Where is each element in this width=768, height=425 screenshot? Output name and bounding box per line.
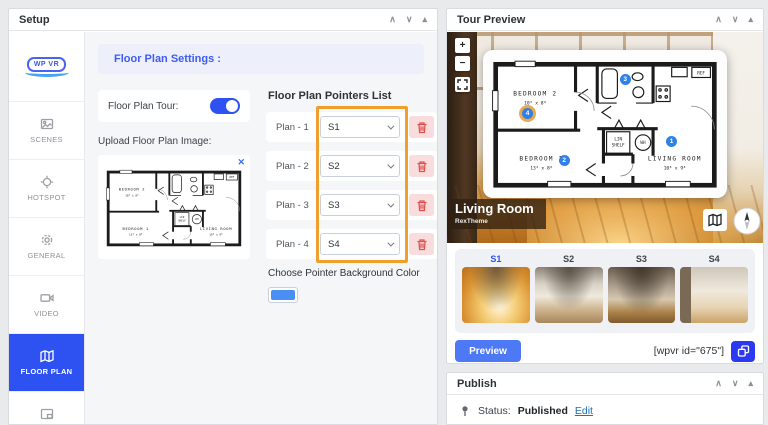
move-down-icon[interactable]: ∨ — [406, 15, 413, 24]
tour-preview-header: Tour Preview ∧ ∨ ▴ — [447, 9, 763, 31]
fullscreen-button[interactable] — [455, 77, 470, 92]
room-dims-bedroom1: 13⁴ x 8⁸ — [530, 166, 553, 172]
trash-icon — [416, 238, 428, 251]
chevron-down-icon — [387, 122, 394, 129]
pointer-row-label: Plan - 2 — [272, 161, 320, 172]
copy-shortcode-button[interactable] — [731, 341, 755, 362]
room-label-bedroom1: BEDROOM 1 — [123, 227, 149, 231]
sidebar-item-general[interactable]: GENERAL — [9, 218, 84, 276]
room-dims-bedroom2: 10³ x 8⁸ — [524, 101, 547, 107]
brand-watermark: RexTheme — [455, 218, 534, 225]
scene-pointer-3[interactable]: 3 — [620, 74, 631, 85]
pointer-color-label: Choose Pointer Background Color — [268, 268, 437, 279]
trash-icon — [416, 160, 428, 173]
pointer-color-value — [271, 290, 295, 300]
pointer-row-label: Plan - 3 — [272, 200, 320, 211]
zoom-in-button[interactable]: + — [455, 38, 470, 53]
floor-plan-image: BEDROOM 2 10³ x 8⁸ BEDROOM 1 13⁴ x 8⁸ LI… — [104, 163, 244, 253]
tour-preview-panel: Tour Preview ∧ ∨ ▴ + − — [446, 8, 764, 364]
pointer-color-swatch[interactable] — [268, 287, 298, 303]
pointer-row-2: Plan - 2 S2 — [266, 151, 437, 181]
room-dims-livingroom: 10⁸ x 9⁸ — [209, 233, 223, 237]
thumbnail-s2[interactable]: S2 — [535, 254, 603, 328]
wpvr-logo-text: WP VR — [27, 57, 66, 72]
sidebar-item-video[interactable]: VIDEO — [9, 276, 84, 334]
remove-image-icon[interactable]: ✕ — [237, 157, 245, 168]
setup-main-area: Floor Plan Settings : Floor Plan Tour: U… — [85, 32, 437, 424]
scene-pointer-1[interactable]: 1 — [666, 136, 677, 147]
refrigerator-label: REF — [697, 70, 705, 76]
floor-plan-image-card[interactable]: ✕ — [98, 155, 250, 259]
floor-plan-map-icon — [40, 349, 54, 363]
gear-icon — [40, 233, 54, 247]
status-label: Status: — [478, 405, 511, 417]
pointer-row-3: Plan - 3 S3 — [266, 190, 437, 220]
water-heater-label: WH — [640, 140, 646, 146]
preview-button[interactable]: Preview — [455, 340, 521, 362]
refrigerator-label: REF — [230, 175, 235, 179]
background-icon — [40, 407, 54, 421]
toggle-knob — [226, 100, 238, 112]
scene-select-value: S2 — [328, 161, 340, 172]
compass-control[interactable] — [733, 207, 761, 235]
collapse-panel-icon[interactable]: ▴ — [422, 15, 427, 24]
trash-icon — [416, 199, 428, 212]
scene-title-overlay: Living Room RexTheme — [447, 199, 546, 229]
thumbnail-s4[interactable]: S4 — [680, 254, 748, 328]
thumbnail-label: S2 — [563, 254, 574, 264]
scene-select-value: S1 — [328, 122, 340, 133]
setup-sidebar: WP VR SCENES HOTSPOT GENERAL VIDEO F — [9, 32, 85, 424]
scene-select-value: S3 — [328, 200, 340, 211]
pointer-row-label: Plan - 4 — [272, 239, 320, 250]
sidebar-item-label: GENERAL — [28, 251, 66, 260]
publish-panel-title: Publish — [457, 378, 497, 390]
room-label-bedroom1: BEDROOM 1 — [519, 155, 563, 162]
sidebar-item-floor-plan[interactable]: FLOOR PLAN — [9, 334, 84, 392]
move-up-icon[interactable]: ∧ — [715, 15, 722, 24]
pointer-row-label: Plan - 1 — [272, 122, 320, 133]
thumbnail-label: S3 — [636, 254, 647, 264]
pointer-row-4: Plan - 4 S4 — [266, 229, 437, 259]
lin-shelf-label: SHELF — [178, 219, 186, 223]
status-value: Published — [518, 405, 568, 417]
floor-plan-drawing: BEDROOM 2 10³ x 8⁸ BEDROOM 1 13⁴ x 8⁸ LI… — [488, 55, 722, 193]
setup-panel-header: Setup ∧ ∨ ▴ — [9, 9, 437, 31]
sidebar-item-label: HOTSPOT — [27, 193, 65, 202]
room-dims-bedroom2: 10³ x 8⁸ — [125, 193, 139, 197]
pointer-row-1: Plan - 1 S1 — [266, 112, 437, 142]
water-heater-label: WH — [195, 217, 199, 221]
floor-plan-settings-heading: Floor Plan Settings : — [98, 44, 424, 74]
scene-select-4[interactable]: S4 — [320, 233, 400, 255]
chevron-down-icon — [387, 200, 394, 207]
room-label-livingroom: LIVING ROOM — [200, 227, 232, 231]
thumbnail-image[interactable] — [462, 267, 530, 323]
scene-select-3[interactable]: S3 — [320, 194, 400, 216]
scene-select-1[interactable]: S1 — [320, 116, 400, 138]
move-up-icon[interactable]: ∧ — [715, 379, 722, 388]
room-label-bedroom2: BEDROOM 2 — [513, 90, 557, 97]
delete-pointer-4-button[interactable] — [409, 233, 434, 255]
toggle-floor-plan-button[interactable] — [703, 209, 727, 231]
scene-pointer-4-active[interactable]: 4 — [522, 108, 533, 119]
edit-status-link[interactable]: Edit — [575, 405, 593, 417]
scene-thumbnails-bar: S1 S2 S3 S4 — [455, 249, 755, 333]
thumbnail-label: S4 — [709, 254, 720, 264]
publish-panel-header: Publish ∧ ∨ ▴ — [447, 373, 763, 395]
thumbnail-s1[interactable]: S1 — [462, 254, 530, 328]
sidebar-item-hotspot[interactable]: HOTSPOT — [9, 160, 84, 218]
lin-shelf-label: SHELF — [612, 142, 625, 148]
room-label-livingroom: LIVING ROOM — [648, 155, 702, 162]
setup-panel: Setup ∧ ∨ ▴ WP VR SCENES HOTSPOT GENERAL — [8, 8, 438, 425]
move-down-icon[interactable]: ∨ — [732, 379, 739, 388]
sidebar-item-label: VIDEO — [34, 309, 59, 318]
thumbnail-label: S1 — [490, 254, 501, 264]
move-up-icon[interactable]: ∧ — [389, 15, 396, 24]
delete-pointer-2-button[interactable] — [409, 155, 434, 177]
chevron-down-icon — [387, 161, 394, 168]
scene-select-2[interactable]: S2 — [320, 155, 400, 177]
pointers-list-heading: Floor Plan Pointers List — [268, 90, 437, 102]
room-dims-livingroom: 10⁸ x 9⁸ — [664, 166, 687, 172]
sidebar-item-label: FLOOR PLAN — [21, 367, 73, 376]
delete-pointer-3-button[interactable] — [409, 194, 434, 216]
status-row: Status: Published Edit — [459, 405, 751, 417]
publish-panel: Publish ∧ ∨ ▴ Status: Published Edit Vis… — [446, 372, 764, 425]
setup-panel-title: Setup — [19, 14, 50, 26]
sidebar-item-label: SCENES — [30, 135, 63, 144]
lin-shelf-label: LIN — [180, 215, 185, 219]
copy-icon — [736, 343, 751, 359]
shortcode-text: [wpvr id="675"] — [654, 345, 724, 357]
room-label-bedroom2: BEDROOM 2 — [119, 188, 145, 192]
floor-plan-tour-row: Floor Plan Tour: — [98, 90, 250, 122]
wpvr-logo: WP VR — [9, 32, 84, 102]
floor-plan-tour-toggle[interactable] — [210, 98, 240, 114]
map-icon — [707, 212, 723, 228]
move-down-icon[interactable]: ∨ — [732, 15, 739, 24]
thumbnail-image[interactable] — [535, 267, 603, 323]
collapse-panel-icon[interactable]: ▴ — [748, 379, 753, 388]
thumbnail-image[interactable] — [680, 267, 748, 323]
thumbnail-s3[interactable]: S3 — [608, 254, 676, 328]
chevron-down-icon — [387, 239, 394, 246]
panorama-viewport[interactable]: + − — [447, 32, 763, 243]
zoom-out-button[interactable]: − — [455, 56, 470, 71]
compass-icon — [733, 207, 761, 235]
sidebar-item-scenes[interactable]: SCENES — [9, 102, 84, 160]
tour-preview-title: Tour Preview — [457, 14, 525, 26]
scenes-icon — [40, 117, 54, 131]
room-dims-bedroom1: 13⁴ x 8⁸ — [129, 233, 143, 237]
pin-icon — [459, 405, 471, 417]
scene-select-value: S4 — [328, 239, 340, 250]
delete-pointer-1-button[interactable] — [409, 116, 434, 138]
thumbnail-image[interactable] — [608, 267, 676, 323]
video-icon — [40, 291, 54, 305]
floor-plan-tour-label: Floor Plan Tour: — [108, 101, 178, 112]
scene-title: Living Room — [455, 202, 534, 216]
hotspot-icon — [40, 175, 54, 189]
lin-shelf-label: LIN — [614, 136, 622, 142]
sidebar-item-background[interactable]: BACKGROUND — [9, 392, 84, 424]
fullscreen-icon — [457, 79, 468, 90]
upload-floor-plan-label: Upload Floor Plan Image: — [98, 136, 250, 147]
scene-pointer-2[interactable]: 2 — [559, 155, 570, 166]
trash-icon — [416, 121, 428, 134]
collapse-panel-icon[interactable]: ▴ — [748, 15, 753, 24]
floor-plan-overlay[interactable]: BEDROOM 2 10³ x 8⁸ BEDROOM 1 13⁴ x 8⁸ LI… — [483, 50, 727, 198]
